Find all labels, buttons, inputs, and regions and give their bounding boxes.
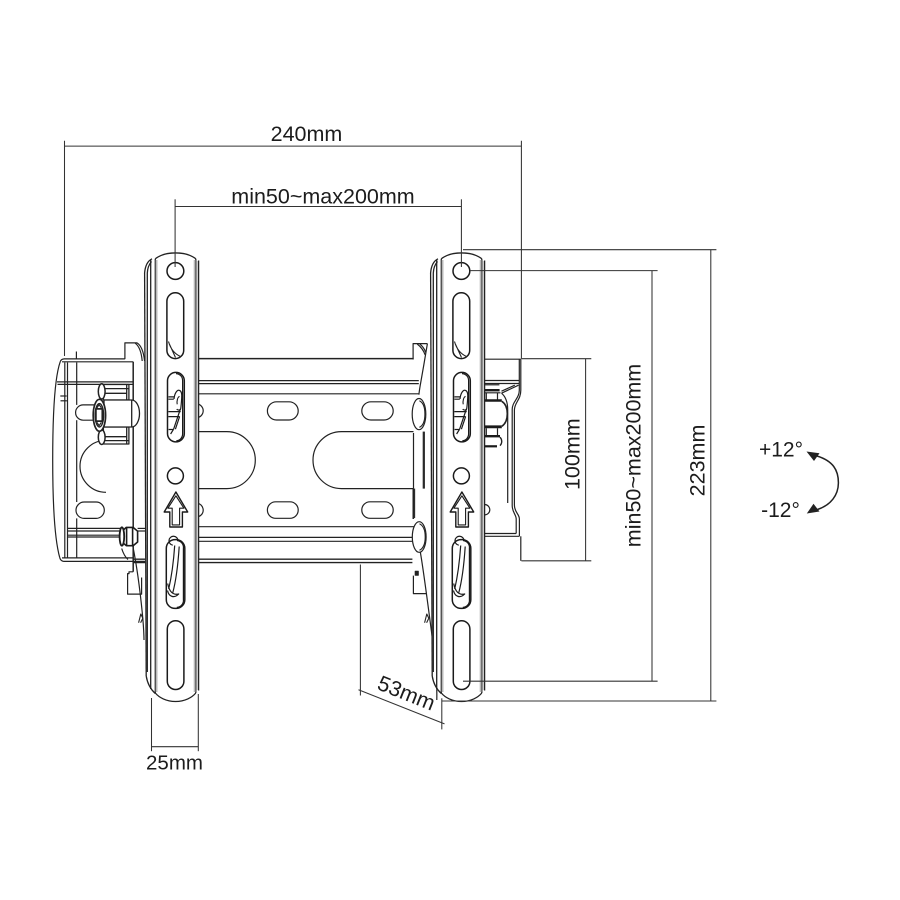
- svg-text:+12°: +12°: [759, 439, 803, 462]
- svg-text:223mm: 223mm: [686, 425, 710, 497]
- svg-text:min50~max200mm: min50~max200mm: [231, 184, 414, 208]
- svg-text:100mm: 100mm: [561, 418, 585, 490]
- svg-text:min50~max200mm: min50~max200mm: [622, 364, 646, 547]
- svg-text:25mm: 25mm: [146, 752, 203, 775]
- svg-text:-12°: -12°: [761, 499, 800, 522]
- svg-text:240mm: 240mm: [271, 122, 343, 146]
